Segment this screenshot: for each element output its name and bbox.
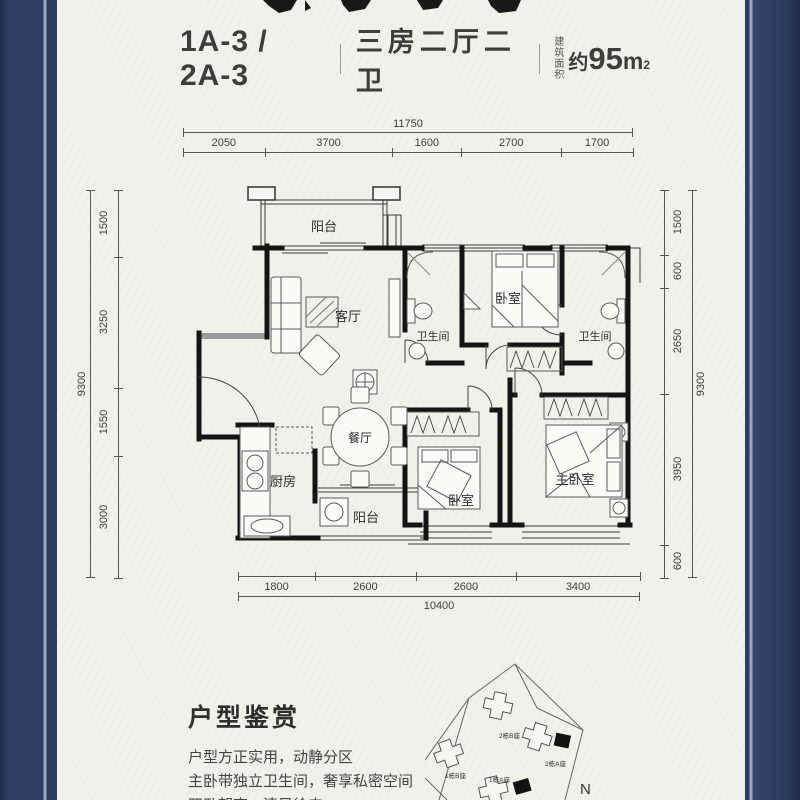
dim-right-total: 9300 bbox=[693, 190, 709, 578]
area-label-line2: 面积 bbox=[554, 59, 564, 81]
room-label-bedroom-second: 卧室 bbox=[448, 493, 474, 508]
room-label-living: 客厅 bbox=[335, 309, 361, 324]
layout-description: 三房二厅二卫 bbox=[356, 20, 524, 98]
dim-seg: 2600 bbox=[315, 577, 416, 596]
compass-north: N bbox=[580, 781, 591, 798]
site-map: 2栋B座 2栋A座 1栋B座 1栋A座 N bbox=[425, 648, 650, 800]
dim-seg: 3400 bbox=[516, 577, 640, 596]
dim-bottom-total-line bbox=[238, 596, 640, 597]
calligraphy-title-clipped bbox=[245, 0, 565, 16]
dimension-bottom: 1800 2600 2600 3400 10400 bbox=[238, 576, 640, 612]
dim-seg: 1550 bbox=[91, 388, 118, 457]
area-unit: m bbox=[623, 48, 643, 75]
dim-seg: 2650 bbox=[665, 288, 692, 393]
appreciation-line: 户型方正实用，动静分区 bbox=[188, 746, 413, 770]
appreciation-line: 主卧带独立卫生间，奢享私密空间 bbox=[188, 770, 413, 794]
area-number: 95 bbox=[588, 41, 622, 77]
room-label-balcony-bottom: 阳台 bbox=[353, 510, 379, 525]
right-frame-border bbox=[745, 0, 800, 800]
dim-bottom-total: 10400 bbox=[238, 600, 640, 612]
appreciation-section: 户型鉴赏 户型方正实用，动静分区 主卧带独立卫生间，奢享私密空间 双卧朝南，清风… bbox=[188, 698, 413, 800]
dim-left-total: 9300 bbox=[74, 190, 90, 578]
appreciation-line: 双卧朝南，清风徐来 bbox=[188, 794, 413, 800]
dim-seg: 1500 bbox=[91, 190, 118, 257]
site-label-2A: 2栋A座 bbox=[545, 759, 566, 768]
dim-seg: 2050 bbox=[183, 133, 265, 152]
dim-bottom-segments: 1800 2600 2600 3400 bbox=[238, 576, 640, 596]
dim-right-segments: 1500 600 2650 3950 600 bbox=[664, 190, 692, 578]
dim-seg: 3000 bbox=[91, 456, 118, 578]
dim-seg: 3250 bbox=[91, 257, 118, 388]
left-frame-border bbox=[0, 0, 57, 800]
floorplan-poster: 1A-3 / 2A-3 三房二厅二卫 建筑 面积 约95m2 11750 205… bbox=[0, 0, 800, 800]
room-label-kitchen: 厨房 bbox=[270, 474, 296, 489]
header-divider bbox=[539, 44, 540, 74]
dim-seg: 3950 bbox=[665, 394, 692, 545]
site-label-1A: 1栋A座 bbox=[489, 775, 510, 784]
room-label-dining: 餐厅 bbox=[348, 430, 372, 445]
dim-seg: 1800 bbox=[238, 577, 315, 596]
room-label-bath1: 卫生间 bbox=[417, 329, 450, 343]
dim-seg: 1500 bbox=[665, 190, 692, 255]
dim-seg: 1700 bbox=[561, 133, 633, 152]
dim-left-segments: 1500 3250 1550 3000 bbox=[91, 190, 119, 578]
header: 1A-3 / 2A-3 三房二厅二卫 建筑 面积 约95m2 bbox=[180, 36, 650, 82]
dim-seg: 2600 bbox=[416, 577, 517, 596]
floor-plan: 阳台 客厅 卫生间 卧室 卫生间 餐厅 厨房 阳台 卧室 主卧室 bbox=[170, 185, 660, 580]
unit-code: 1A-3 / 2A-3 bbox=[180, 25, 325, 93]
header-divider bbox=[340, 44, 341, 74]
area-approx: 约 bbox=[568, 46, 588, 75]
balcony-pillars bbox=[248, 187, 400, 200]
dimension-top: 11750 2050 3700 1600 2700 1700 bbox=[183, 118, 633, 153]
room-label-balcony-top: 阳台 bbox=[311, 219, 337, 234]
area-value: 约95m2 bbox=[568, 41, 650, 77]
dim-top-total: 11750 bbox=[183, 118, 633, 130]
site-label-2B: 2栋B座 bbox=[499, 731, 520, 740]
dim-seg: 600 bbox=[665, 255, 692, 288]
room-label-bath2: 卫生间 bbox=[579, 329, 612, 343]
area-label: 建筑 面积 bbox=[554, 37, 564, 81]
area-sup: 2 bbox=[643, 58, 650, 72]
dimension-right: 1500 600 2650 3950 600 9300 bbox=[664, 190, 709, 578]
room-label-master: 主卧室 bbox=[555, 472, 594, 487]
dimension-left: 9300 1500 3250 1550 3000 bbox=[74, 190, 119, 578]
room-label-bedroom-top: 卧室 bbox=[495, 291, 521, 306]
entry-low-wall bbox=[197, 333, 267, 339]
dim-seg: 2700 bbox=[461, 133, 561, 152]
dim-seg: 1600 bbox=[392, 133, 461, 152]
dim-seg: 3700 bbox=[265, 133, 393, 152]
area-label-line1: 建筑 bbox=[554, 37, 564, 59]
site-label-1B: 1栋B座 bbox=[445, 771, 466, 780]
dim-right-total-line bbox=[692, 190, 693, 578]
appreciation-heading: 户型鉴赏 bbox=[188, 698, 413, 734]
dim-top-segments: 2050 3700 1600 2700 1700 bbox=[183, 133, 633, 153]
built-area: 建筑 面积 约95m2 bbox=[554, 37, 650, 81]
dim-seg: 600 bbox=[665, 545, 692, 578]
